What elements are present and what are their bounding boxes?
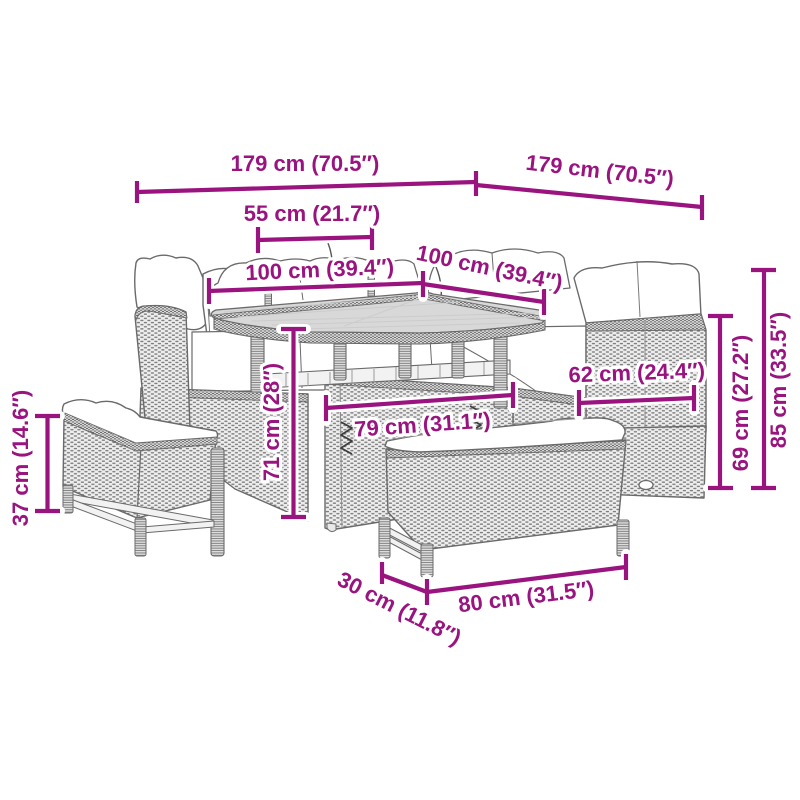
svg-text:69 cm (27.2″): 69 cm (27.2″) [728, 335, 753, 472]
svg-text:179 cm (70.5″): 179 cm (70.5″) [231, 151, 380, 176]
svg-text:85 cm (33.5″): 85 cm (33.5″) [766, 312, 791, 449]
svg-text:37 cm (14.6″): 37 cm (14.6″) [8, 390, 33, 527]
svg-text:62 cm (24.4″): 62 cm (24.4″) [568, 358, 705, 388]
svg-text:71 cm (28″): 71 cm (28″) [259, 363, 284, 481]
svg-text:55 cm (21.7″): 55 cm (21.7″) [244, 201, 381, 226]
